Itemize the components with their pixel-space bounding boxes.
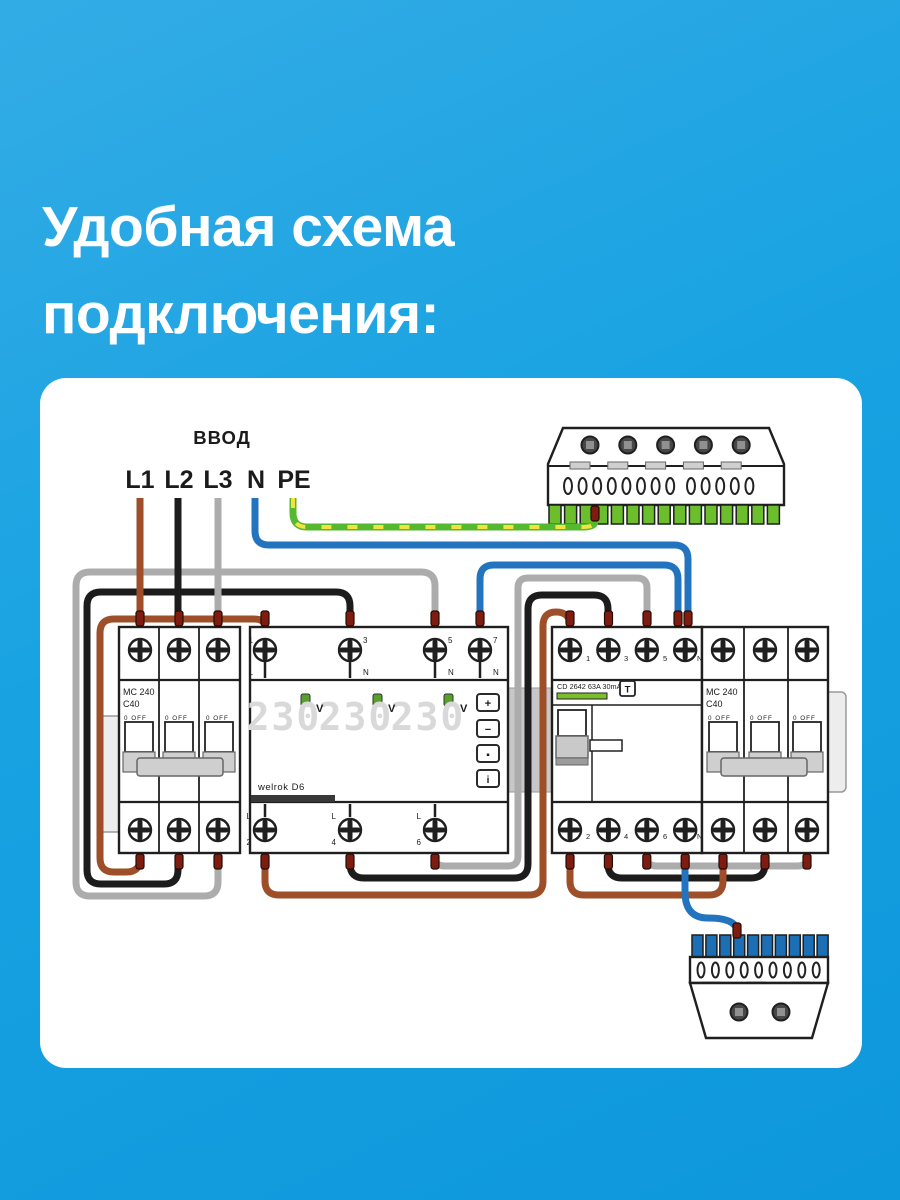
terminal-screw-icon (207, 639, 229, 661)
ferrule-icon (214, 611, 222, 626)
pe-bus-screw-icon (695, 437, 712, 454)
ferrule-icon (684, 611, 692, 626)
rcd-test-button-label: T (625, 685, 631, 696)
relay-terminal-num: 1 (249, 636, 254, 645)
n-bus-slot (726, 963, 733, 978)
relay-terminal-label: N (448, 668, 454, 677)
terminal-screw-icon (254, 639, 276, 661)
ferrule-icon (803, 854, 811, 869)
ferrule-icon (346, 854, 354, 869)
terminal-screw-icon (339, 639, 361, 661)
pe-bus-screw-icon (657, 437, 674, 454)
n-bus-slot (698, 963, 705, 978)
breaker-model: MC 240 (123, 687, 155, 697)
pe-bus-slot (564, 478, 572, 494)
breaker-rating: C40 (123, 699, 140, 709)
pe-bus-tab (608, 462, 628, 469)
wiring-diagram: ВВОД L1 L2 L3 N PE MC 240 C40 0 OFF 0 O (40, 378, 862, 1068)
terminal-screw-icon (796, 639, 818, 661)
rcd-terminal-num: 3 (624, 654, 628, 663)
rcd-toggle-handle (556, 736, 588, 758)
pe-bus-tab (683, 462, 703, 469)
pe-bus-slot (731, 478, 739, 494)
terminal-screw-icon (559, 819, 581, 841)
breaker-rating: C40 (706, 699, 723, 709)
ferrule-icon (175, 611, 183, 626)
n-bus-screw-icon (731, 1004, 748, 1021)
pe-bus-tooth (627, 505, 639, 524)
wire-label-pe: PE (277, 466, 310, 494)
relay-plus-button-label: + (485, 698, 491, 710)
terminal-screw-icon (754, 639, 776, 661)
terminal-screw-icon (339, 819, 361, 841)
breaker-off-label: 0 OFF (124, 715, 147, 722)
ferrule-icon (719, 854, 727, 869)
pe-bus-tooth (721, 505, 733, 524)
voltage-unit: V (316, 703, 324, 715)
terminal-screw-icon (207, 819, 229, 841)
pe-bus-tooth (689, 505, 701, 524)
input-label: ВВОД (193, 427, 251, 448)
pe-bus-screw-icon (582, 437, 599, 454)
ferrule-icon (431, 854, 439, 869)
pe-bus-slot (687, 478, 695, 494)
breaker-off-label: 0 OFF (708, 715, 731, 722)
relay-terminal-num: 3 (363, 636, 368, 645)
pe-bus-tooth (643, 505, 655, 524)
pe-bus-slot (652, 478, 660, 494)
ferrule-icon (643, 611, 651, 626)
ferrule-icon (175, 854, 183, 869)
pe-bus-slot (622, 478, 630, 494)
n-bus-slot (798, 963, 805, 978)
pe-bus-tooth (565, 505, 577, 524)
n-bus-slot (784, 963, 791, 978)
n-bus-tooth (789, 935, 800, 958)
terminal-screw-icon (129, 819, 151, 841)
pe-bus-tab (570, 462, 590, 469)
terminal-screw-icon (674, 819, 696, 841)
breaker-model: MC 240 (706, 687, 738, 697)
title-line-1: Удобная схема (42, 184, 454, 271)
voltage-reading-2: 230 (319, 695, 394, 739)
terminal-screw-icon (712, 819, 734, 841)
ferrule-icon (346, 611, 354, 626)
n-bus-slot (741, 963, 748, 978)
terminal-screw-icon (129, 639, 151, 661)
relay-terminal-label: N (493, 668, 499, 677)
ferrule-icon (136, 611, 144, 626)
page-title: Удобная схема подключения: (42, 184, 454, 358)
terminal-screw-icon (424, 819, 446, 841)
pe-bus-tab (646, 462, 666, 469)
relay-set-button-label: ▪ (486, 750, 490, 761)
pe-bus-slot (593, 478, 601, 494)
ferrule-icon (566, 611, 574, 626)
ferrule-icon (431, 611, 439, 626)
pe-bus-slot (608, 478, 616, 494)
relay-brand: welrok D6 (257, 782, 305, 793)
wire-label-l2: L2 (164, 466, 193, 494)
pe-bus-slot (716, 478, 724, 494)
pe-bus-tooth (752, 505, 764, 524)
voltage-reading-1: 230 (247, 695, 322, 739)
relay-terminal-label: L (417, 812, 422, 821)
voltage-relay: 1 L 3 N 5 N 7 N 230 230 230 V V V + − ▪ … (247, 627, 508, 853)
terminal-screw-icon (559, 639, 581, 661)
breaker-off-label: 0 OFF (206, 715, 229, 722)
pe-bus-slot (666, 478, 674, 494)
ferrule-icon (566, 854, 574, 869)
n-bus-slot (813, 963, 820, 978)
ferrule-icon (681, 854, 689, 869)
rcd-terminal-num: 2 (586, 832, 590, 841)
pe-bus-screw-icon (619, 437, 636, 454)
terminal-screw-icon (754, 819, 776, 841)
voltage-unit: V (388, 703, 396, 715)
pe-bus-tooth (767, 505, 779, 524)
ferrule-icon (214, 854, 222, 869)
relay-terminal-label: L (332, 812, 337, 821)
n-bus-tooth (720, 935, 731, 958)
pe-bus-screw-icon (733, 437, 750, 454)
relay-info-button-label: i (487, 775, 490, 786)
relay-terminal-label: L (249, 668, 254, 677)
ferrule-icon (761, 854, 769, 869)
wire-label-l3: L3 (203, 466, 232, 494)
relay-terminal-label: N (363, 668, 369, 677)
pe-bus-tooth (674, 505, 686, 524)
ferrule-icon (733, 923, 741, 938)
relay-terminal-num: 5 (448, 636, 453, 645)
terminal-screw-icon (597, 819, 619, 841)
breaker-off-label: 0 OFF (165, 715, 188, 722)
pe-bus-tooth (736, 505, 748, 524)
pe-bus-slot (637, 478, 645, 494)
terminal-screw-icon (469, 639, 491, 661)
n-bus-tooth (762, 935, 773, 958)
rcd-terminal-num: 6 (663, 832, 667, 841)
n-bus-slot (755, 963, 762, 978)
terminal-screw-icon (168, 819, 190, 841)
pe-bus-slot (579, 478, 587, 494)
rcd-terminal-num: 4 (624, 832, 628, 841)
terminal-screw-icon (674, 639, 696, 661)
breaker-toggle-handle (137, 758, 223, 776)
terminal-screw-icon (597, 639, 619, 661)
wire-label-l1: L1 (125, 466, 154, 494)
ferrule-icon (643, 854, 651, 869)
n-bus-bar (690, 935, 828, 1038)
pe-bus-bar (548, 428, 784, 524)
ferrule-icon (674, 611, 682, 626)
pe-bus-tooth (549, 505, 561, 524)
voltage-unit: V (460, 703, 468, 715)
terminal-screw-icon (636, 819, 658, 841)
n-bus-slot (770, 963, 777, 978)
rcd-terminal-num: 5 (663, 654, 667, 663)
n-bus-slot (712, 963, 719, 978)
ferrule-icon (261, 611, 269, 626)
breaker-off-label: 0 OFF (793, 715, 816, 722)
pe-bus-slot (745, 478, 753, 494)
ferrule-icon (591, 506, 599, 521)
ferrule-icon (605, 611, 613, 626)
breaker-off-label: 0 OFF (750, 715, 773, 722)
terminal-screw-icon (254, 819, 276, 841)
wire-label-n: N (247, 466, 265, 494)
n-bus-tooth (803, 935, 814, 958)
terminal-screw-icon (712, 639, 734, 661)
ferrule-icon (604, 854, 612, 869)
pe-bus-tooth (705, 505, 717, 524)
voltage-reading-3: 230 (391, 695, 466, 739)
rcd-terminal-num: 1 (586, 654, 590, 663)
ferrule-icon (261, 854, 269, 869)
relay-terminal-num: 2 (247, 838, 252, 847)
n-bus-tooth (748, 935, 759, 958)
terminal-screw-icon (636, 639, 658, 661)
n-bus-tooth (817, 935, 828, 958)
relay-terminal-num: 7 (493, 636, 498, 645)
terminal-screw-icon (424, 639, 446, 661)
relay-terminal-num: 4 (332, 838, 337, 847)
rcd-green-bar (557, 693, 607, 699)
ferrule-icon (136, 854, 144, 869)
ferrule-icon (476, 611, 484, 626)
relay-terminal-label: L (247, 812, 252, 821)
breaker-toggle-handle (721, 758, 807, 776)
relay-minus-button-label: − (485, 724, 491, 736)
pe-bus-tab (721, 462, 741, 469)
n-bus-screw-icon (773, 1004, 790, 1021)
relay-terminal-num: 6 (417, 838, 422, 847)
n-bus-tooth (706, 935, 717, 958)
n-bus-tooth (775, 935, 786, 958)
terminal-screw-icon (168, 639, 190, 661)
n-bus-tooth (692, 935, 703, 958)
terminal-screw-icon (796, 819, 818, 841)
title-line-2: подключения: (42, 271, 454, 358)
pe-bus-slot (702, 478, 710, 494)
pe-bus-tooth (611, 505, 623, 524)
pe-bus-tooth (658, 505, 670, 524)
rcd-label: CD 2642 63A 30mA (557, 682, 622, 691)
